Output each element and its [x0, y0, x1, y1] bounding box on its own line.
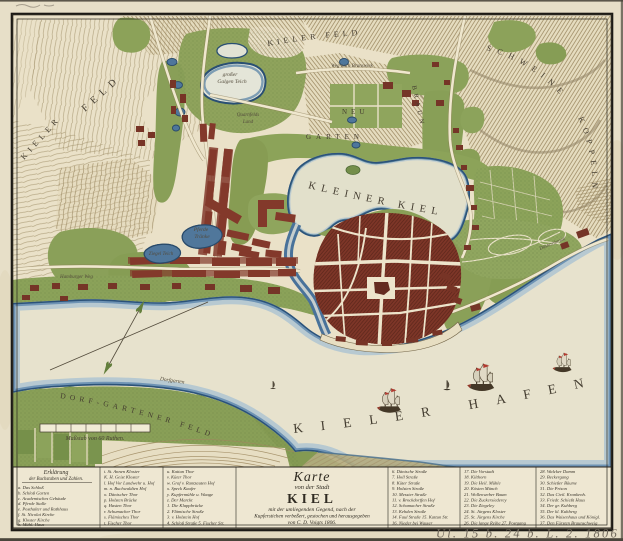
svg-text:Ul. 15 b. 24 b. L. 2. 1806: Ul. 15 b. 24 b. L. 2. 1806	[436, 527, 619, 541]
